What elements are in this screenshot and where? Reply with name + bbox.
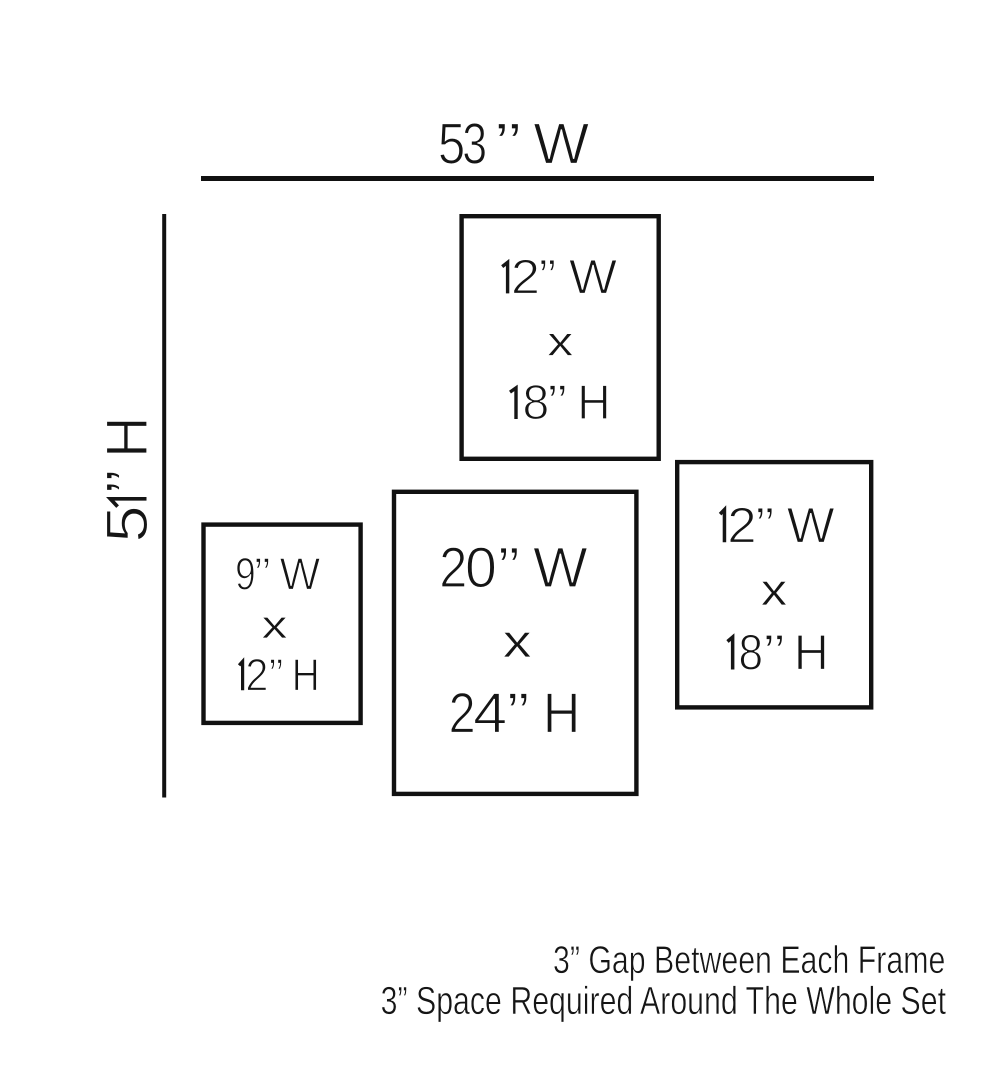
svg-text:”: ” (269, 649, 284, 700)
svg-text:3” Gap Between Each Frame: 3” Gap Between Each Frame (553, 939, 945, 982)
svg-text:8: 8 (738, 625, 763, 681)
svg-text:x: x (261, 604, 287, 647)
svg-text:H: H (794, 625, 829, 681)
svg-text:3” Space Required Around The W: 3” Space Required Around The Whole Set (381, 979, 946, 1023)
svg-text:2: 2 (511, 251, 540, 305)
svg-text:2: 2 (449, 682, 476, 746)
svg-text:2: 2 (727, 496, 756, 553)
svg-text:0: 0 (465, 536, 497, 600)
svg-text:2: 2 (245, 649, 268, 700)
svg-text:H: H (292, 649, 320, 700)
svg-text:”: ” (95, 469, 160, 493)
svg-text:8: 8 (522, 376, 549, 430)
svg-text:”: ” (763, 625, 785, 681)
svg-text:”: ” (547, 376, 567, 430)
svg-text:2: 2 (439, 536, 467, 600)
svg-text:H: H (577, 376, 610, 430)
svg-text:W: W (569, 251, 617, 305)
svg-text:x: x (503, 616, 532, 667)
svg-text:”: ” (254, 548, 271, 599)
svg-text:”: ” (495, 112, 522, 177)
svg-text:9: 9 (235, 548, 256, 599)
svg-text:3: 3 (462, 112, 487, 177)
svg-text:”: ” (539, 251, 557, 305)
svg-text:5: 5 (95, 505, 160, 542)
svg-text:x: x (547, 318, 574, 365)
svg-text:x: x (761, 564, 788, 614)
svg-text:H: H (543, 682, 580, 746)
svg-text:W: W (787, 496, 835, 553)
svg-text:4: 4 (473, 682, 507, 746)
svg-text:5: 5 (438, 112, 465, 177)
svg-text:W: W (533, 112, 589, 177)
svg-text:W: W (533, 536, 588, 600)
svg-text:”: ” (498, 536, 520, 600)
svg-text:H: H (95, 416, 160, 457)
svg-text:W: W (280, 548, 321, 599)
svg-text:”: ” (755, 496, 774, 553)
svg-text:”: ” (507, 682, 530, 746)
